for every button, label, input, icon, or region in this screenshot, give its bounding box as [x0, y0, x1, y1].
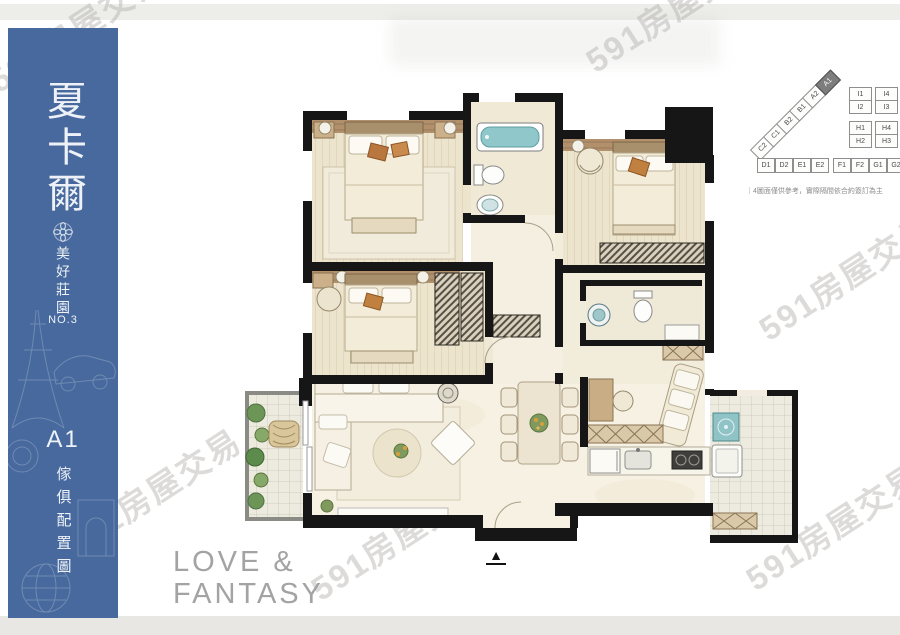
- rattan-chair: [269, 421, 299, 447]
- site-key-plan: C2 C1 B2 B1 A2 A1 I1 I2 I4 I3 H1 H2 H4 H…: [745, 70, 900, 205]
- side-table: [438, 383, 458, 403]
- corner-block: [665, 107, 713, 163]
- desk: [589, 379, 613, 421]
- project-subtitle: 美好莊園: [53, 246, 73, 318]
- keyplan-unit: F1: [833, 158, 851, 173]
- keyplan-unit: G2: [887, 158, 900, 173]
- sink: [477, 195, 503, 215]
- plant: [247, 404, 265, 422]
- desk-chair: [613, 391, 633, 411]
- keyplan-unit: H2: [849, 134, 872, 148]
- bottom-scan-strip: [0, 616, 900, 635]
- north-arrow-icon: ▲: [483, 548, 509, 562]
- living-room: [315, 378, 476, 516]
- plant: [255, 428, 269, 442]
- project-banner: 夏卡爾 美好莊園 NO.3 A1 傢俱配置圖: [8, 28, 118, 618]
- keyplan-unit: D2: [775, 158, 793, 173]
- round-chair: [577, 148, 603, 174]
- unit-label: A1: [46, 426, 79, 454]
- window: [705, 183, 714, 221]
- slogan: LOVE & FANTASY: [173, 546, 324, 611]
- vanity: [665, 325, 699, 340]
- corridor-closet: [493, 315, 540, 337]
- floor-plan: [245, 85, 805, 550]
- door-gap: [463, 185, 471, 213]
- keyplan-unit: I3: [875, 100, 898, 114]
- round-sink: [588, 304, 610, 326]
- keyplan-unit: D1: [757, 158, 775, 173]
- hall-floor: [471, 223, 563, 265]
- window: [303, 283, 312, 333]
- plant: [254, 473, 268, 487]
- keyplan-unit: G1: [869, 158, 887, 173]
- laundry-sink: [712, 445, 742, 477]
- north-arrow: ▲: [483, 548, 509, 565]
- keyplan-disclaimer: ｜4圖面僅供參考，實際隔間依合約簽訂為主: [746, 186, 899, 196]
- keyplan-unit: H4: [875, 121, 898, 135]
- bed-bench: [352, 218, 416, 233]
- toilet: [474, 165, 504, 185]
- keyplan-unit: F2: [851, 158, 869, 173]
- door-gap: [485, 337, 493, 363]
- window: [585, 130, 625, 139]
- x-base-cabinet: [587, 425, 663, 443]
- round-table: [317, 287, 341, 311]
- keyplan-unit: E1: [793, 158, 811, 173]
- car-sketch: [54, 356, 115, 391]
- keyplan-unit: E2: [811, 158, 829, 173]
- sliding-door: [303, 401, 312, 491]
- window: [303, 151, 312, 201]
- keyplan-unit: I2: [849, 100, 872, 114]
- project-title: 夏卡爾: [34, 80, 92, 218]
- series-number: NO.3: [48, 314, 78, 326]
- bed3: [345, 274, 417, 363]
- door-gap: [737, 390, 767, 396]
- north-arrow-baseline: [486, 563, 506, 565]
- rosette-icon: [53, 222, 73, 242]
- slogan-line1: LOVE &: [173, 546, 324, 578]
- drawing-type-label: 傢俱配置圖: [53, 466, 74, 581]
- door-gap: [555, 347, 563, 373]
- x-cabinet: [713, 513, 757, 529]
- window: [479, 93, 515, 102]
- window: [347, 111, 409, 120]
- tv-console: [338, 508, 448, 516]
- plant: [248, 493, 264, 509]
- keyplan-unit: H1: [849, 121, 872, 135]
- kitchen: [588, 447, 710, 475]
- dining-area: [501, 382, 578, 464]
- slogan-line2: FANTASY: [173, 578, 324, 610]
- wardrobe: [600, 243, 704, 263]
- fridge: [590, 449, 620, 473]
- keyplan-unit: H3: [875, 134, 898, 148]
- toilet: [634, 291, 652, 322]
- plant: [246, 448, 264, 466]
- door-gap: [525, 215, 555, 223]
- wardrobe: [461, 273, 483, 341]
- plant: [321, 500, 333, 512]
- keyplan-unit: I1: [849, 87, 872, 101]
- scan-smudge: [390, 18, 720, 66]
- kitchen-sink: [625, 451, 651, 469]
- centerpiece: [530, 414, 548, 432]
- keyplan-unit: I4: [875, 87, 898, 101]
- window: [705, 353, 714, 389]
- door-gap: [580, 301, 586, 323]
- master-bed: [345, 122, 423, 233]
- wardrobe: [435, 273, 459, 345]
- door-gap: [555, 233, 563, 259]
